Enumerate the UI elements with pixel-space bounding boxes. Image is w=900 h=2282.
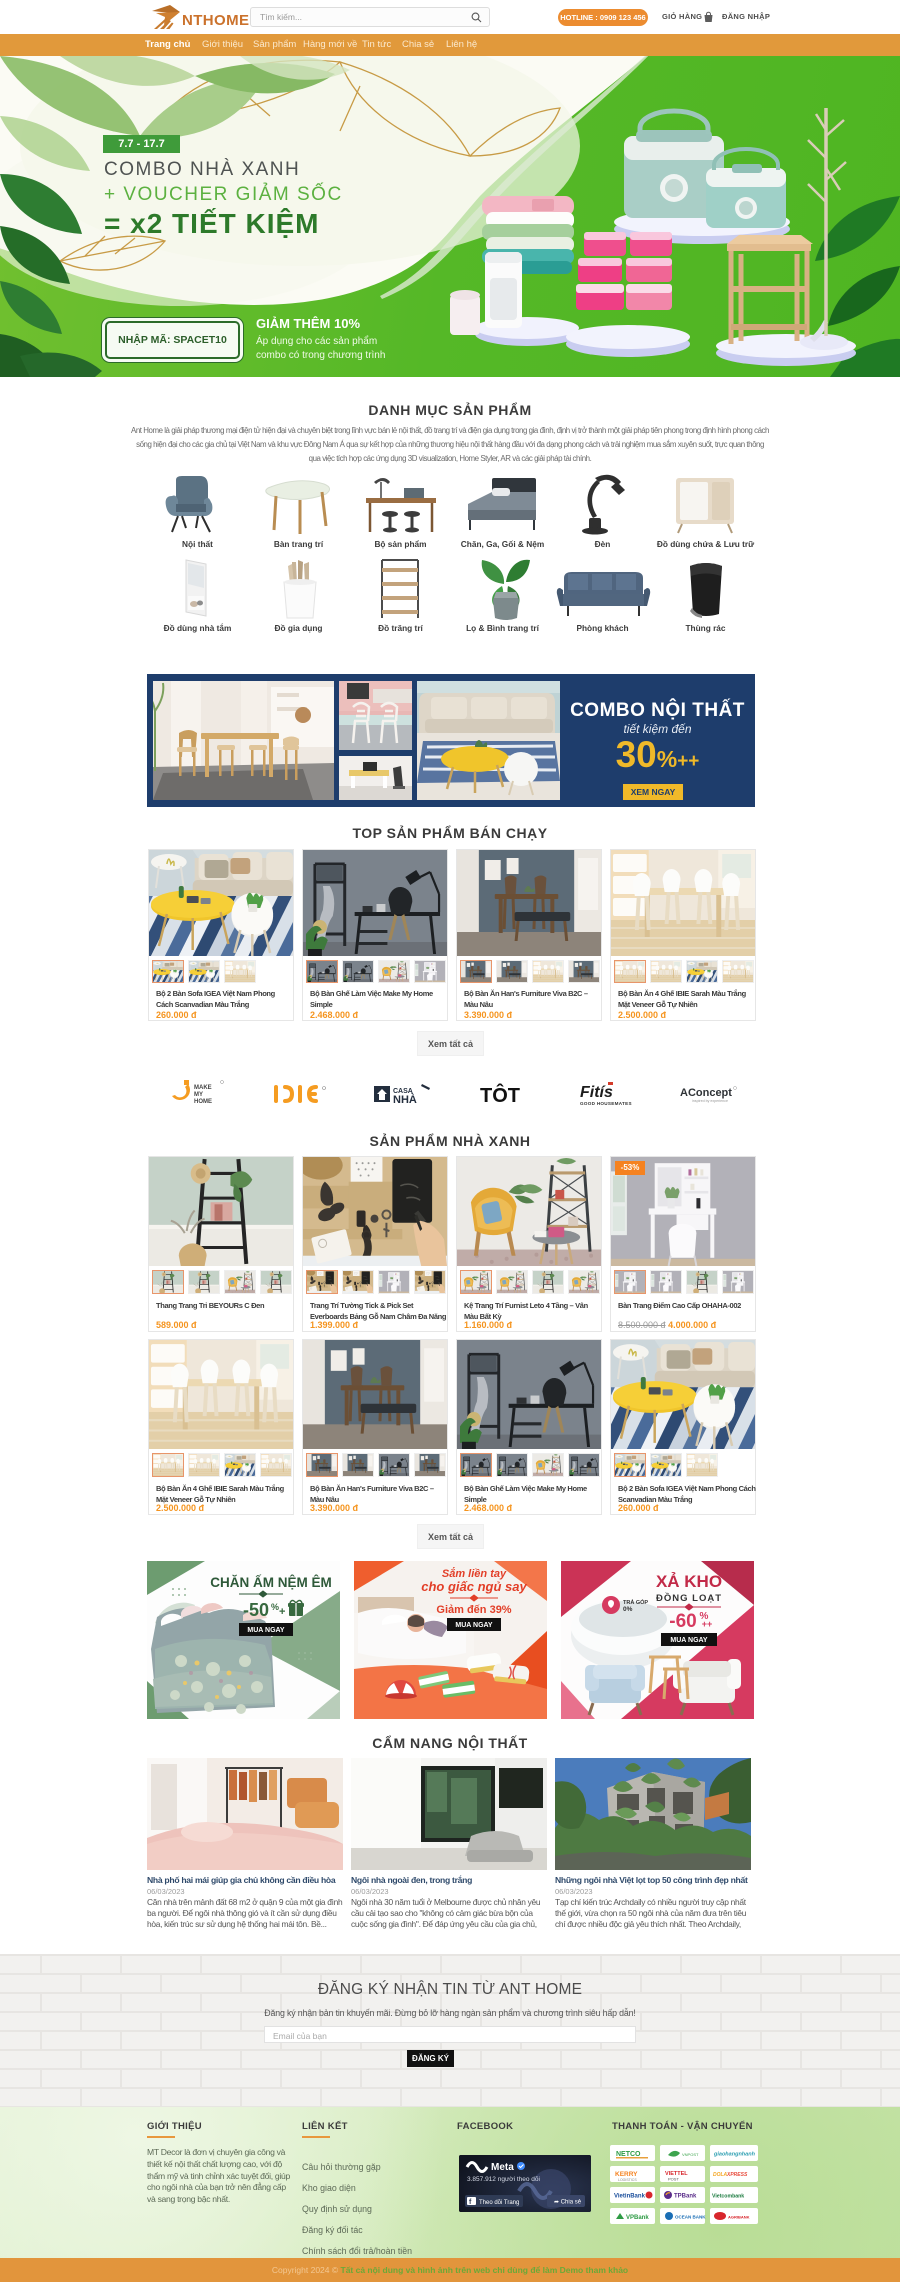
svg-text:%: % (271, 1602, 279, 1612)
svg-text:VietinBank: VietinBank (614, 2194, 646, 2200)
svg-text:Meta: Meta (491, 2162, 514, 2173)
svg-text:VPBank: VPBank (626, 2215, 649, 2221)
svg-text:MY: MY (194, 1092, 203, 1098)
svg-text:KERRY: KERRY (615, 2171, 638, 2178)
svg-text:-60: -60 (669, 1611, 696, 1632)
svg-text:giaohangnhanh: giaohangnhanh (713, 2152, 756, 2158)
svg-text:LOGISTICS: LOGISTICS (618, 2178, 637, 2182)
svg-text:Fitís: Fitís (580, 1084, 613, 1101)
svg-text:Giảm đến 39%: Giảm đến 39% (436, 1604, 511, 1616)
svg-text:NHÀ: NHÀ (393, 1093, 417, 1106)
svg-text:POST: POST (668, 2177, 679, 2182)
svg-text:CHĂN ẤM NỆM ÊM: CHĂN ẤM NỆM ÊM (210, 1575, 332, 1590)
svg-text:ĐỒNG LOẠT: ĐỒNG LOẠT (656, 1592, 722, 1604)
svg-text:-50: -50 (243, 1600, 269, 1620)
svg-text:XPRESS: XPRESS (726, 2172, 748, 2178)
svg-text:MUA NGAY: MUA NGAY (247, 1627, 285, 1634)
svg-text:MAKE: MAKE (194, 1085, 212, 1091)
svg-text:MUA NGAY: MUA NGAY (670, 1637, 708, 1644)
svg-text:3.857.912 người theo dõi: 3.857.912 người theo dõi (467, 2176, 540, 2183)
svg-text:HOME: HOME (194, 1099, 212, 1105)
svg-text:NETCO: NETCO (616, 2151, 641, 2158)
svg-text:GOOD HOUSEMATES: GOOD HOUSEMATES (580, 1101, 632, 1106)
svg-text:MUA NGAY: MUA NGAY (455, 1622, 493, 1629)
svg-text:TÔT: TÔT (480, 1083, 520, 1107)
svg-text:+: + (279, 1606, 285, 1618)
svg-text:TPBank: TPBank (674, 2194, 697, 2200)
svg-text:0%: 0% (623, 1606, 633, 1613)
svg-text:VNPOST: VNPOST (682, 2152, 699, 2157)
svg-text:++: ++ (702, 1619, 713, 1629)
svg-text:Theo dõi Trang: Theo dõi Trang (479, 2200, 519, 2206)
svg-text:NTHOME: NTHOME (182, 12, 249, 29)
svg-text:OCEAN BANK: OCEAN BANK (675, 2215, 706, 2220)
svg-text:AConcept: AConcept (680, 1087, 732, 1099)
svg-text:➦ Chia sẻ: ➦ Chia sẻ (554, 2200, 582, 2206)
svg-text:Vietcombank: Vietcombank (712, 2194, 744, 2200)
svg-text:inspired by experience: inspired by experience (692, 1099, 728, 1103)
svg-text:cho giấc ngủ say: cho giấc ngủ say (421, 1579, 527, 1594)
svg-text:DOLA: DOLA (713, 2172, 728, 2178)
svg-text:XẢ KHO: XẢ KHO (656, 1572, 722, 1591)
svg-text:TRẢ GÓP: TRẢ GÓP (623, 1598, 648, 1606)
svg-text:AGRIBANK: AGRIBANK (728, 2215, 750, 2220)
